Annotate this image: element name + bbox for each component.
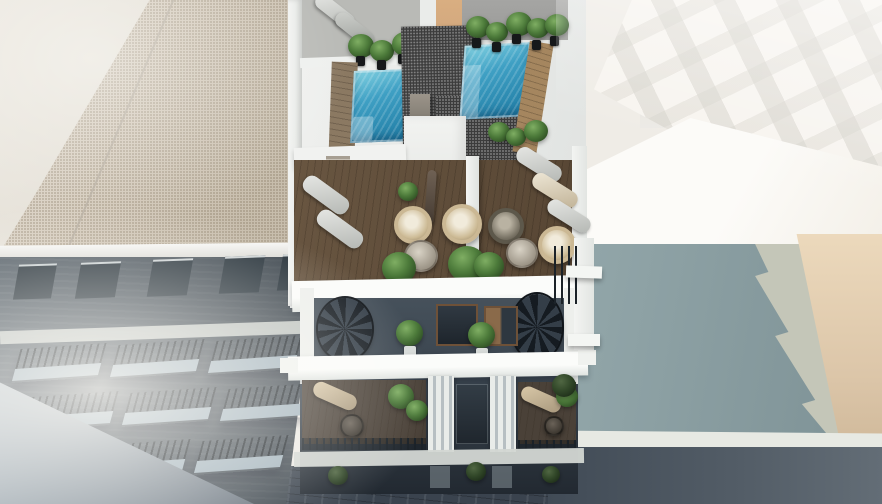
left-facade-window bbox=[147, 258, 194, 296]
ribbed-fin-right bbox=[490, 376, 516, 452]
balcony-table bbox=[544, 416, 564, 436]
lower-fin-hint bbox=[492, 466, 512, 488]
plant-pot bbox=[550, 36, 559, 46]
ribbed-fin-left bbox=[428, 376, 454, 452]
slab-wing-right bbox=[578, 350, 596, 365]
pool-steps bbox=[352, 116, 373, 141]
penthouse-potted-plant bbox=[396, 320, 423, 346]
planter-shrub bbox=[506, 128, 526, 146]
terrace-palm bbox=[398, 182, 418, 201]
plant-pot bbox=[472, 38, 481, 48]
palm-plant bbox=[486, 22, 508, 42]
balcony-railing bbox=[302, 438, 426, 450]
palm-plant bbox=[545, 14, 569, 36]
plant-pot bbox=[512, 34, 521, 44]
hanging-egg-chair bbox=[442, 204, 482, 244]
plant-pot bbox=[532, 40, 541, 50]
left-balcony bbox=[11, 343, 106, 383]
lower-fin-hint bbox=[430, 466, 450, 488]
hanging-egg-chair bbox=[394, 206, 432, 244]
right-street-pavement bbox=[548, 447, 882, 504]
aerial-render-scene bbox=[0, 0, 882, 504]
left-balcony bbox=[109, 339, 204, 379]
terrace-round-table bbox=[506, 238, 538, 268]
lower-balcony-plant bbox=[542, 466, 560, 483]
penthouse-potted-plant bbox=[468, 322, 495, 348]
east-balcony-slab bbox=[568, 334, 600, 346]
left-facade-window bbox=[219, 255, 266, 293]
left-balcony bbox=[121, 387, 216, 427]
east-balcony-plant bbox=[552, 374, 576, 397]
left-facade-window bbox=[75, 261, 121, 298]
left-facade-window bbox=[13, 263, 57, 299]
east-balcony-slab bbox=[566, 265, 602, 278]
balcony-table bbox=[340, 414, 364, 438]
plant-pot bbox=[492, 42, 501, 52]
plant-pot bbox=[377, 60, 386, 70]
lower-balcony-plant bbox=[466, 462, 486, 481]
planter-shrub bbox=[524, 120, 548, 142]
left-balcony bbox=[193, 435, 288, 475]
spiral-staircase-left bbox=[318, 298, 372, 360]
pool-sun-shelf bbox=[460, 65, 482, 118]
slab-wing-left bbox=[280, 358, 298, 373]
balcony-glass-doors bbox=[456, 384, 488, 444]
palm-plant bbox=[370, 40, 394, 62]
balcony-plant bbox=[406, 400, 428, 421]
lower-balcony-plant bbox=[328, 466, 348, 485]
